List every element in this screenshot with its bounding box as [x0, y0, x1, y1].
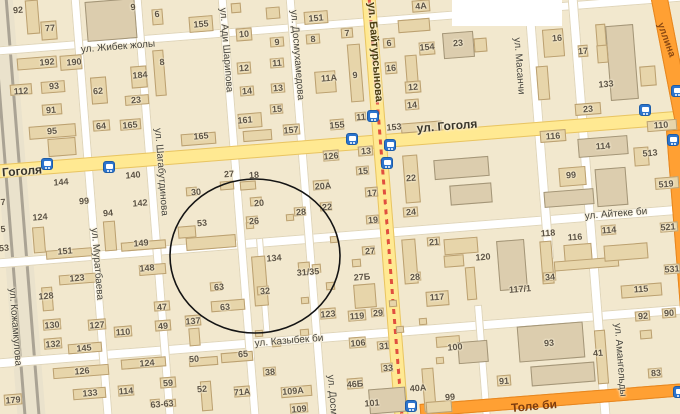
building-number-label: 20А: [314, 180, 331, 191]
building-number-label: 23: [131, 95, 142, 106]
building-number-label: 26: [249, 216, 260, 227]
building[interactable]: [266, 6, 281, 19]
building[interactable]: [330, 236, 339, 244]
map-viewport[interactable]: 9277961921901848112936223155151109812111…: [0, 0, 680, 414]
building-number-label: 49: [158, 321, 169, 332]
building-number-label: 144: [53, 176, 69, 187]
building-number-label: 11А: [321, 72, 338, 83]
building-number-label: 31: [379, 341, 390, 352]
empty-tile-patch: [452, 0, 562, 26]
building-number-label: 47: [157, 302, 168, 313]
building[interactable]: [436, 357, 445, 365]
building-number-label: 9: [352, 70, 358, 80]
building-number-label: 93: [544, 338, 555, 349]
building-number-label: 93: [49, 81, 60, 92]
building[interactable]: [243, 129, 273, 142]
building[interactable]: [352, 259, 362, 268]
transport-stop-icon[interactable]: [381, 157, 393, 169]
building[interactable]: [444, 254, 465, 268]
building-number-label: 126: [74, 365, 90, 376]
building-number-label: 38: [265, 367, 276, 378]
building-number-label: 17: [578, 46, 589, 57]
building-number-label: 134: [266, 252, 282, 263]
building-number-label: 7: [344, 28, 350, 38]
building-number-label: 114: [595, 140, 610, 151]
building-number-label: 14: [407, 100, 418, 111]
transport-stop-icon[interactable]: [103, 161, 115, 173]
building-number-label: 6: [386, 38, 392, 48]
building-number-label: 50: [189, 354, 200, 365]
building-number-label: 8: [310, 34, 316, 44]
building-number-label: 65: [238, 349, 249, 360]
building-number-label: 95: [47, 126, 58, 137]
building-number-label: 132: [45, 338, 61, 349]
building-number-label: 179: [5, 394, 21, 405]
building-number-label: 71А: [233, 386, 250, 397]
building-number-label: 14: [242, 86, 253, 97]
building-number-label: 155: [193, 18, 209, 29]
building-number-label: 24: [406, 207, 417, 218]
building[interactable]: [25, 0, 41, 34]
building[interactable]: [419, 318, 428, 326]
transport-stop-icon[interactable]: [405, 400, 417, 412]
street-name-label: ул. Муратбаева: [89, 227, 106, 300]
building-number-label: 190: [66, 56, 82, 67]
street-name-label: ул. Ади Шарипова: [217, 7, 235, 92]
building-number-label: 101: [364, 397, 380, 408]
building-number-label: 83: [651, 368, 662, 379]
building-number-label: 114: [118, 385, 133, 396]
building-number-label: 7: [0, 197, 6, 207]
building-number-label: 28: [410, 272, 421, 283]
building-number-label: 157: [283, 124, 299, 135]
building-number-label: 521: [660, 221, 676, 232]
building-number-label: 8: [159, 57, 165, 67]
building[interactable]: [449, 182, 492, 205]
building-number-label: 22: [322, 202, 333, 213]
building-number-label: 124: [139, 357, 155, 368]
building-number-label: 64: [96, 121, 107, 132]
building-number-label: 9: [274, 37, 280, 47]
building[interactable]: [530, 362, 595, 387]
building[interactable]: [286, 214, 295, 222]
building-number-label: 112: [13, 85, 28, 96]
transport-stop-icon[interactable]: [346, 133, 358, 145]
building-number-label: 11: [272, 58, 282, 69]
building-number-label: 27: [224, 169, 235, 180]
building-number-label: 16: [386, 63, 397, 74]
building-number-label: 5: [0, 224, 6, 234]
building-number-label: 32: [260, 286, 271, 297]
street-name-label: Гоголя: [1, 162, 42, 179]
building[interactable]: [639, 65, 657, 86]
building-number-label: 519: [658, 178, 674, 189]
building-number-label: 142: [132, 197, 148, 208]
building-number-label: 99: [79, 196, 90, 207]
building[interactable]: [596, 45, 608, 64]
building-number-label: 16: [552, 33, 563, 44]
building[interactable]: [443, 237, 478, 256]
building[interactable]: [398, 18, 431, 33]
building-number-label: 110: [653, 119, 668, 130]
building[interactable]: [220, 180, 235, 190]
building-number-label: 120: [475, 251, 491, 262]
building-number-label: 155: [329, 119, 345, 130]
building-number-label: 11: [356, 112, 366, 123]
building-number-label: 114: [601, 224, 616, 235]
building-number-label: 53: [0, 243, 9, 254]
building[interactable]: [301, 297, 310, 305]
building-number-label: 92: [13, 5, 24, 16]
building[interactable]: [433, 156, 489, 180]
building-number-label: 27: [365, 246, 376, 257]
building-number-label: 12: [408, 82, 419, 93]
building-number-label: 22: [406, 173, 417, 184]
building-number-label: 140: [125, 169, 141, 180]
building-number-label: 109А: [282, 385, 304, 397]
building[interactable]: [326, 282, 336, 291]
building-number-label: 116: [567, 231, 582, 242]
building-number-label: 18: [249, 170, 260, 181]
transport-stop-icon[interactable]: [671, 85, 680, 97]
building-number-label: 59: [163, 378, 174, 389]
building-number-label: 91: [46, 105, 57, 116]
building-number-label: 161: [237, 114, 253, 125]
building-number-label: 12: [239, 63, 250, 74]
building-number-label: 116: [545, 130, 560, 141]
building-number-label: 13: [361, 146, 372, 157]
building[interactable]: [255, 330, 264, 338]
building-number-label: 151: [57, 245, 73, 256]
building[interactable]: [396, 326, 405, 334]
building-number-label: 109: [291, 403, 307, 414]
building-number-label: 128: [38, 290, 54, 301]
building-number-label: 30: [191, 187, 202, 198]
building[interactable]: [536, 66, 551, 101]
building[interactable]: [188, 328, 200, 347]
building-number-label: 99: [566, 170, 577, 181]
street-name-label: ул. Масанчи: [511, 37, 526, 95]
transport-stop-icon[interactable]: [667, 134, 679, 146]
street-name-label: ул. Амангельды: [612, 323, 629, 397]
building-number-label: 133: [598, 78, 614, 89]
building-number-label: 192: [39, 56, 55, 67]
building[interactable]: [32, 227, 46, 254]
building-number-label: 123: [69, 272, 85, 283]
building-number-label: 4А: [415, 1, 427, 12]
building-number-label: 62: [93, 86, 104, 97]
building-number-label: 94: [103, 208, 114, 219]
building-number-label: 23: [453, 38, 464, 49]
building-number-label: 148: [139, 262, 155, 273]
building-number-label: 100: [447, 341, 463, 352]
building-number-label: 151: [308, 12, 324, 23]
building-number-label: 53: [197, 218, 208, 229]
building-number-label: 531: [664, 263, 680, 274]
building-number-label: 91: [499, 376, 510, 387]
building-number-label: 40А: [409, 382, 426, 393]
building-number-label: 127: [89, 319, 105, 330]
building[interactable]: [605, 24, 639, 101]
building-number-label: 184: [132, 69, 148, 80]
building-number-label: 77: [45, 23, 56, 34]
building-number-label: 10: [239, 29, 250, 40]
building[interactable]: [240, 180, 257, 190]
building-number-label: 20: [254, 198, 265, 209]
building-number-label: 123: [320, 308, 336, 319]
building-number-label: 126: [323, 150, 339, 161]
building-number-label: 33: [383, 363, 394, 374]
building-number-label: 137: [185, 315, 201, 326]
building-number-label: 27Б: [353, 271, 370, 282]
building-number-label: 21: [429, 237, 440, 248]
building-number-label: 117: [429, 291, 444, 302]
building-number-label: 117/1: [509, 283, 532, 295]
building-number-label: 99: [445, 392, 456, 403]
building-number-label: 9: [130, 2, 136, 12]
building[interactable]: [595, 167, 629, 207]
building-number-label: 63: [214, 282, 225, 293]
building-number-label: 106: [350, 337, 366, 348]
building[interactable]: [473, 38, 487, 53]
building[interactable]: [353, 283, 377, 309]
building[interactable]: [231, 3, 242, 14]
building-number-label: 133: [82, 387, 98, 398]
building[interactable]: [389, 300, 398, 308]
building-number-label: 15: [272, 104, 283, 115]
building-number-label: 41: [593, 348, 604, 359]
building-number-label: 115: [633, 283, 648, 294]
building-number-label: 29: [373, 308, 384, 319]
building[interactable]: [603, 242, 648, 261]
building-number-label: 165: [193, 130, 209, 141]
transport-stop-icon[interactable]: [384, 139, 396, 151]
building-number-label: 13: [273, 83, 284, 94]
building-number-label: 119: [349, 310, 364, 321]
building-number-label: 63: [220, 302, 231, 313]
building-number-label: 130: [44, 319, 60, 330]
building-number-label: 90: [664, 308, 675, 319]
building[interactable]: [47, 137, 76, 157]
building-number-label: 28: [296, 207, 307, 218]
transport-stop-icon[interactable]: [639, 104, 651, 116]
building-number-label: 52: [197, 384, 208, 395]
transport-stop-icon[interactable]: [367, 110, 379, 122]
building-number-label: 154: [419, 41, 435, 52]
building-number-label: 165: [122, 119, 138, 130]
building-number-label: 63-63: [150, 398, 174, 410]
building[interactable]: [465, 267, 478, 301]
building-number-label: 23: [583, 104, 594, 115]
building-number-label: 19: [368, 215, 379, 226]
building-number-label: 92: [638, 311, 649, 322]
building-number-label: 124: [32, 211, 48, 222]
building-number-label: 17: [367, 188, 378, 199]
building-number-label: 153: [386, 121, 402, 132]
street-name-label: Толе би: [511, 397, 558, 414]
building[interactable]: [103, 221, 117, 252]
transport-stop-icon[interactable]: [673, 386, 680, 398]
building-number-label: 46Б: [346, 378, 363, 389]
building-number-label: 110: [115, 326, 130, 337]
building[interactable]: [640, 330, 653, 340]
building-number-label: 149: [133, 237, 149, 248]
building-number-label: 145: [76, 342, 92, 353]
street-name-label: ул. Досм: [325, 374, 339, 414]
building-number-label: 6: [154, 9, 160, 19]
building-number-label: 34: [545, 272, 556, 283]
building-number-label: 15: [358, 166, 369, 177]
building-number-label: 513: [642, 147, 658, 158]
transport-stop-icon[interactable]: [41, 158, 53, 170]
building-number-label: 31/35: [296, 266, 319, 278]
building-number-label: 118: [540, 227, 555, 238]
